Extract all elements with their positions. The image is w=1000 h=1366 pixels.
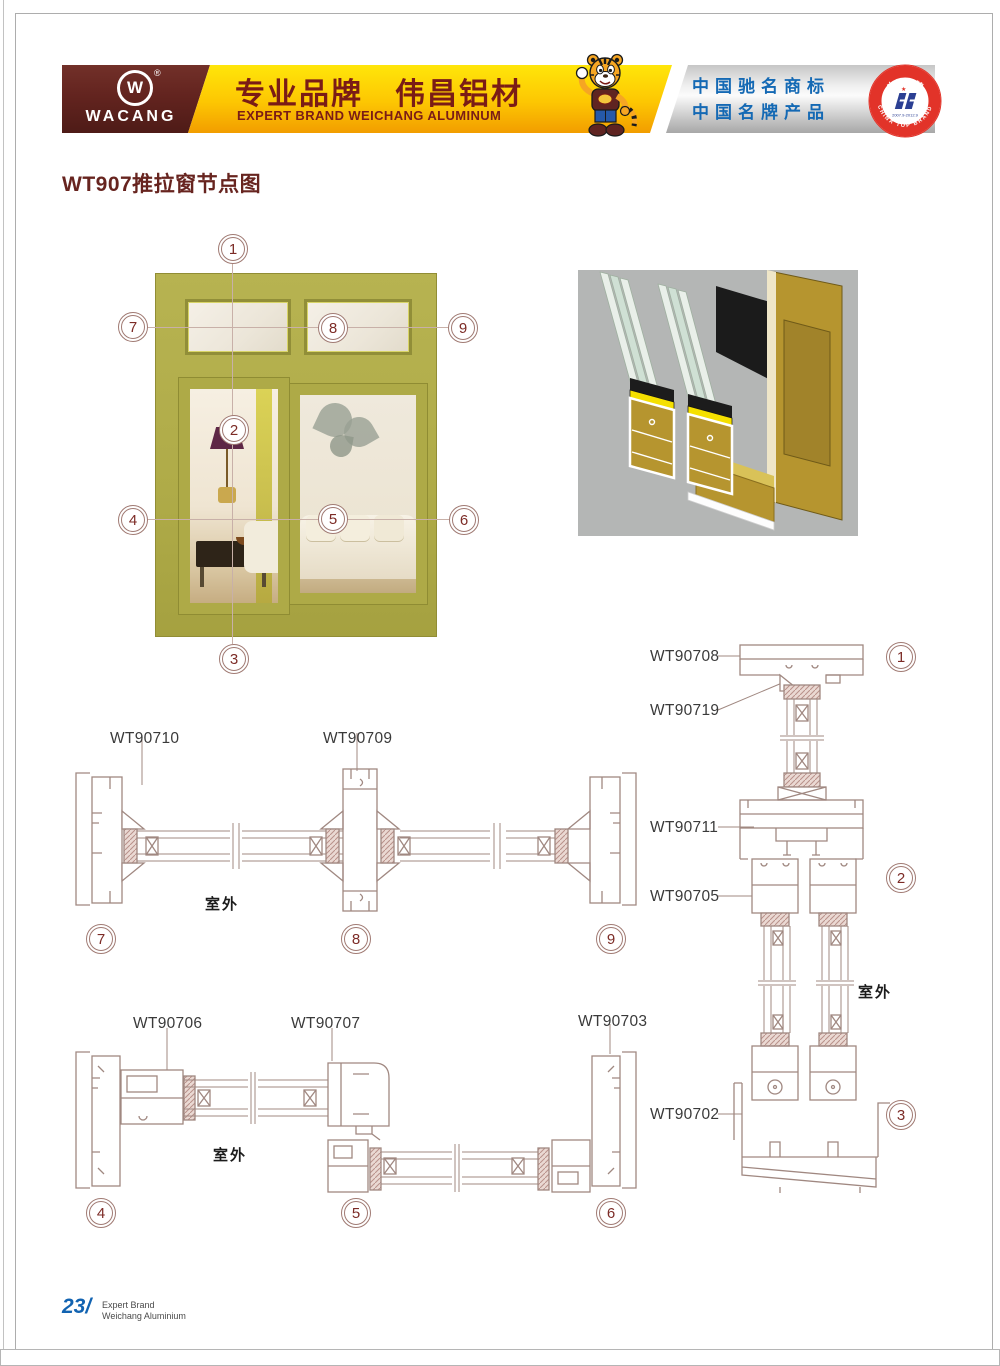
- part-label-wt90707: WT90707: [291, 1015, 360, 1033]
- section-circle-6: 6: [596, 1198, 626, 1228]
- footer-brand-line-2: Weichang Aluminium: [102, 1311, 186, 1322]
- callout-8: 8: [318, 313, 348, 343]
- sofa-corner: [244, 521, 278, 573]
- lamp-stem: [226, 449, 228, 487]
- section-circle-4: 4: [86, 1198, 116, 1228]
- section-circle-2: 2: [886, 863, 916, 893]
- section-circle-3: 3: [886, 1100, 916, 1130]
- profile-3d-render: [578, 270, 858, 536]
- outdoor-label-right: 室外: [858, 981, 892, 1002]
- callout-2: 2: [219, 415, 249, 445]
- callout-5: 5: [318, 504, 348, 534]
- honor-line-2: 中国名牌产品: [692, 98, 862, 123]
- window-sash-left: [178, 377, 290, 615]
- footer-brand: Expert Brand Weichang Aluminium: [102, 1300, 186, 1321]
- honor-line-1: 中国驰名商标: [692, 72, 862, 97]
- part-label-wt90719: WT90719: [650, 702, 719, 720]
- part-label-wt90709: WT90709: [323, 730, 392, 748]
- section-circle-8: 8: [341, 924, 371, 954]
- tiger-mascot-icon: [570, 52, 644, 140]
- brand-slogan-en: EXPERT BRAND WEICHANG ALUMINUM: [237, 108, 501, 123]
- badge-dates: 2007.9-2012.9: [892, 113, 919, 118]
- section-circle-1: 1: [886, 642, 916, 672]
- section-drawing-horizontal-bottom: [60, 1008, 640, 1213]
- leader-line-top: [146, 327, 448, 328]
- window-sash-right: [288, 383, 428, 605]
- callout-1: 1: [218, 234, 248, 264]
- brand-slogan-cn: 专业品牌 伟昌铝材: [235, 69, 523, 113]
- part-label-wt90710: WT90710: [110, 730, 179, 748]
- section-circle-9: 9: [596, 924, 626, 954]
- page-edge-line: [3, 0, 4, 1350]
- part-label-wt90705: WT90705: [650, 888, 719, 906]
- china-top-brand-badge: 中国名牌 CHINA TOP BRAND ★ 2007.9-2012.9: [867, 63, 943, 139]
- footer-brand-line-1: Expert Brand: [102, 1300, 186, 1311]
- callout-3: 3: [219, 644, 249, 674]
- logo-block: W ® WACANG: [62, 65, 210, 133]
- callout-4: 4: [118, 505, 148, 535]
- leader-line-middle: [146, 519, 449, 520]
- section-drawing-horizontal-top: [60, 725, 640, 915]
- callout-9: 9: [448, 313, 478, 343]
- part-label-wt90711: WT90711: [650, 819, 718, 837]
- part-label-wt90702: WT90702: [650, 1106, 719, 1124]
- registered-mark: ®: [154, 68, 161, 78]
- part-label-wt90706: WT90706: [133, 1015, 202, 1033]
- badge-star-icon: ★: [901, 86, 906, 93]
- section-circle-5: 5: [341, 1198, 371, 1228]
- section-circle-7: 7: [86, 924, 116, 954]
- interior-scene-right: [300, 395, 416, 593]
- logo-monogram: W: [127, 78, 143, 98]
- page-title: WT907推拉窗节点图: [62, 168, 261, 198]
- outdoor-label-mid: 室外: [205, 893, 239, 914]
- part-label-wt90708: WT90708: [650, 648, 719, 666]
- leader-line-vertical: [232, 262, 233, 644]
- page-number: 23/: [62, 1295, 91, 1319]
- callout-7: 7: [118, 312, 148, 342]
- outdoor-label-bottom: 室外: [213, 1144, 247, 1165]
- wacang-logo-icon: W: [117, 70, 153, 106]
- lamp-base: [218, 487, 236, 503]
- page-bottom-strip: [0, 1349, 1000, 1366]
- logo-wordmark: WACANG: [62, 108, 200, 126]
- callout-6: 6: [449, 505, 479, 535]
- table-leg: [200, 567, 204, 587]
- catalog-page: W ® WACANG 专业品牌 伟昌铝材 EXPERT BRAND WEICHA…: [0, 0, 1000, 1366]
